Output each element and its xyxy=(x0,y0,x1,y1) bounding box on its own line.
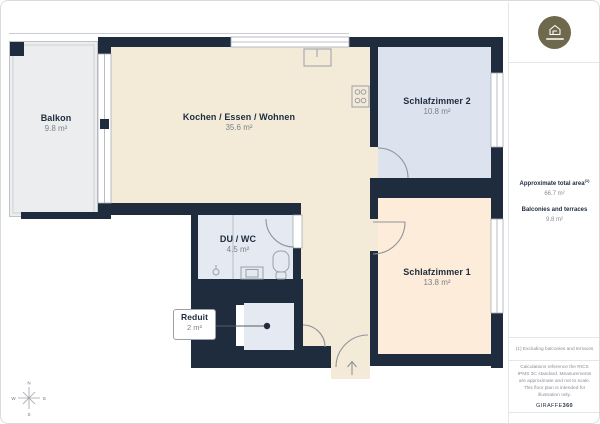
bedroom1-window xyxy=(491,219,503,313)
disclaimer-text: Calculations reference the RICS IPMS 3C … xyxy=(516,364,593,399)
bedroom2-window xyxy=(491,73,503,147)
balcony-door-window xyxy=(98,54,111,203)
hallway-floor xyxy=(301,201,376,361)
brand-wordmark: GIRAFFE360 xyxy=(536,403,573,409)
room-name: Reduit xyxy=(174,312,215,323)
compass: N E S W xyxy=(11,381,46,418)
compass-west: W xyxy=(11,396,16,401)
agency-logo xyxy=(538,16,571,49)
bedroom2-floor xyxy=(371,43,496,183)
compass-north: N xyxy=(27,381,30,386)
footnote-marker: (1) xyxy=(585,178,590,183)
logo-section xyxy=(509,2,600,63)
info-sidebar: Approximate total area(1) 66.7 m² Balcon… xyxy=(508,2,600,423)
bedroom1-floor xyxy=(371,191,496,361)
disclaimer-section: Calculations reference the RICS IPMS 3C … xyxy=(509,361,600,413)
reduit-callout-box: Reduit 2 m² xyxy=(173,309,216,340)
area-summary-section: Approximate total area(1) 66.7 m² Balcon… xyxy=(509,63,600,338)
balconies-label: Balconies and terraces xyxy=(522,206,588,214)
living-floor xyxy=(104,41,376,209)
floorplan-page: N E S W Balkon 9.8 m² Kochen / Essen / W… xyxy=(0,0,600,424)
compass-east: E xyxy=(43,396,46,401)
compass-south: S xyxy=(27,412,30,417)
total-area-label: Approximate total area(1) xyxy=(520,177,590,188)
house-icon xyxy=(548,24,562,36)
room-area: 2 m² xyxy=(174,323,215,333)
balconies-value: 9.8 m² xyxy=(546,216,563,224)
footnote-text: (1) Excluding balconies and terraces xyxy=(516,347,594,352)
footnote-section: (1) Excluding balconies and terraces xyxy=(509,338,600,361)
balcony-floor xyxy=(9,41,98,217)
logo-wordmark xyxy=(546,38,564,40)
total-area-value: 66.7 m² xyxy=(544,190,564,198)
kitchen-window xyxy=(231,37,349,47)
